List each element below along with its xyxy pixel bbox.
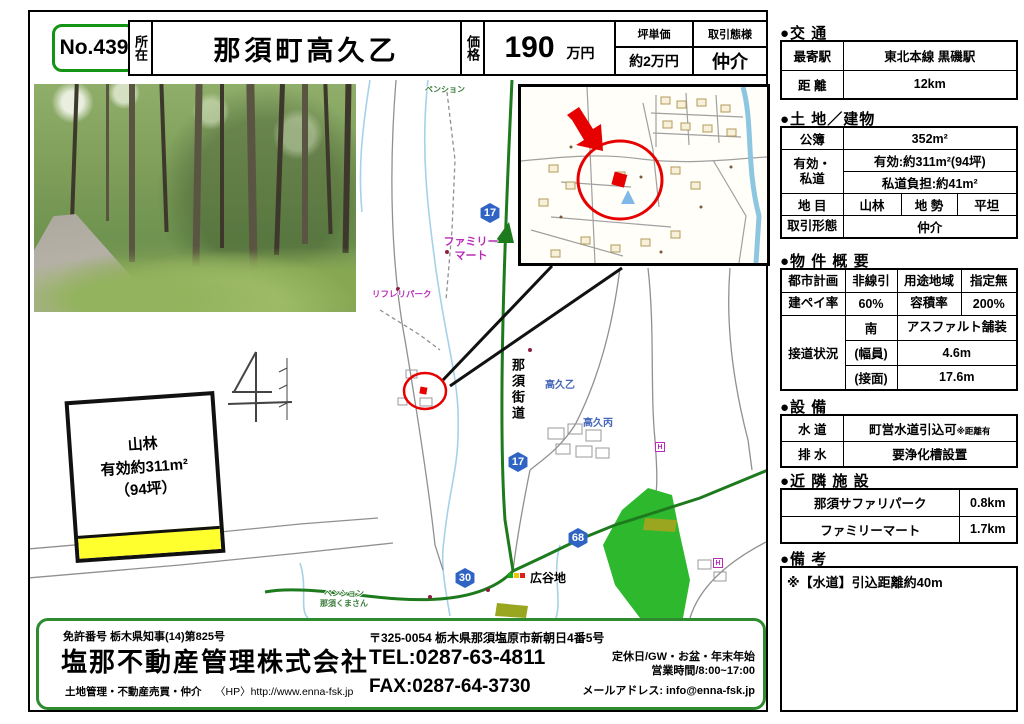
distance-value: 12km — [843, 70, 1017, 99]
effective-area-value: 有効:約311m²(94坪) — [843, 150, 1017, 172]
company-footer: 免許番号 栃木県知事(14)第825号 塩那不動産管理株式会社 土地管理・不動産… — [36, 618, 766, 710]
nearby-name: 那須サファリパーク — [781, 489, 959, 516]
details-sidebar: ●交 通 最寄駅 東北本線 黒磯駅 距 離 12km ●土 地／建物 公簿 35… — [778, 0, 1022, 724]
map-label-refre-park: リフレリパーク — [372, 288, 432, 300]
transaction-type-label: 取引態様 — [694, 22, 766, 48]
table-row: 那須サファリパーク 0.8km — [781, 489, 1017, 516]
nearby-distance: 0.8km — [959, 489, 1017, 516]
water-value-text: 町営水道引込可 — [869, 423, 957, 437]
water-label: 水 道 — [781, 415, 843, 441]
olive-patch-2 — [495, 603, 528, 618]
company-name: 塩那不動産管理株式会社 — [61, 642, 369, 679]
red-arrow-icon — [567, 107, 603, 151]
deal-form-value: 仲介 — [843, 216, 1017, 239]
map-dots — [396, 250, 532, 599]
water-value: 町営水道引込可※距離有 — [843, 415, 1017, 441]
price-unit: 万円 — [567, 43, 595, 63]
olive-patch — [643, 518, 677, 532]
plot-diagram: 山林 有効約311m² （94坪） — [65, 391, 226, 563]
map-label-takaku-otsu: 高久乙 — [545, 376, 575, 391]
company-website: 〈HP〉http://www.enna-fsk.jp — [215, 684, 353, 699]
zoning-value: 指定無 — [961, 269, 1017, 292]
tsubo-price-label: 坪単価 — [616, 22, 692, 48]
private-road-value: 私道負担:約41m² — [843, 172, 1017, 194]
inset-map-drawing — [521, 87, 767, 263]
water-value-note: ※距離有 — [957, 426, 991, 436]
registered-area-value: 352m² — [843, 127, 1017, 150]
deal-form-label: 取引形態 — [781, 216, 843, 239]
map-label-familymart: ファミリー マート — [432, 235, 510, 264]
transaction-type-value: 仲介 — [694, 48, 766, 74]
tsubo-price-value: 約2万円 — [616, 48, 692, 74]
sewage-label: 排 水 — [781, 441, 843, 467]
nearest-station-value: 東北本線 黒磯駅 — [843, 41, 1017, 70]
tree-trunk — [106, 84, 109, 221]
road-direction-value: 南 — [845, 315, 897, 340]
north-symbol — [228, 352, 292, 422]
facilities-table: 水 道 町営水道引込可※距離有 排 水 要浄化槽設置 — [780, 414, 1018, 468]
company-email: メールアドレス: info@enna-fsk.jp — [569, 682, 755, 698]
price-label: 価格 — [462, 22, 485, 74]
transport-table: 最寄駅 東北本線 黒磯駅 距 離 12km — [780, 40, 1018, 100]
map-label-takaku-hei: 高久丙 — [583, 414, 613, 429]
topography-value: 平坦 — [957, 194, 1017, 216]
table-row: 公簿 352m² — [781, 127, 1017, 150]
land-category-label: 地 目 — [781, 194, 843, 216]
nearby-name: ファミリーマート — [781, 516, 959, 543]
table-row: 都市計画 非線引 用途地域 指定無 — [781, 269, 1017, 292]
plot-diagram-text: 山林 有効約311m² （94坪） — [71, 429, 217, 506]
site-photo — [34, 84, 356, 312]
land-category-value: 山林 — [843, 194, 901, 216]
table-row: 水 道 町営水道引込可※距離有 — [781, 415, 1017, 441]
floor-ratio-label: 容積率 — [897, 292, 961, 315]
coverage-ratio-label: 建ペイ率 — [781, 292, 845, 315]
nearest-station-label: 最寄駅 — [781, 41, 843, 70]
frontage-label: (接面) — [845, 365, 897, 390]
traffic-light-icon — [508, 573, 525, 578]
table-row: 距 離 12km — [781, 70, 1017, 99]
map-label-nasukaido: 那須街道 — [508, 358, 527, 422]
price-value: 190 — [504, 31, 554, 65]
company-hours: 営業時間/8:00~17:00 — [569, 662, 755, 678]
leader-lines — [443, 266, 622, 386]
tree-trunk — [302, 84, 308, 244]
nearby-table: 那須サファリパーク 0.8km ファミリーマート 1.7km — [780, 488, 1018, 544]
tree-trunk — [159, 84, 168, 232]
city-planning-value: 非線引 — [845, 269, 897, 292]
hotel-icon: H — [655, 442, 665, 452]
nearby-distance: 1.7km — [959, 516, 1017, 543]
inset-map — [518, 84, 770, 266]
registered-area-label: 公簿 — [781, 127, 843, 150]
frontage-value: 17.6m — [897, 365, 1017, 390]
tree-trunk — [343, 84, 352, 253]
effective-label-line2: 私道 — [784, 172, 841, 186]
land-table: 公簿 352m² 有効・ 私道 有効:約311m²(94坪) 私道負担:約41m… — [780, 126, 1018, 239]
company-services: 土地管理・不動産売買・仲介 — [65, 684, 202, 699]
hotel-icon-2: H — [713, 558, 723, 568]
property-square — [419, 387, 427, 395]
price-box: 価格 190 万円 — [462, 20, 616, 76]
inset-blue-triangle — [621, 190, 635, 204]
map-label-pension-bottom: ペンション 那須くまさん — [320, 589, 368, 608]
inset-river — [743, 87, 759, 263]
table-row: 建ペイ率 60% 容積率 200% — [781, 292, 1017, 315]
location-label: 所在 — [130, 22, 153, 74]
company-tel: TEL:0287-63-4811 — [369, 646, 545, 670]
map-label-pension-top: ペンション — [425, 85, 465, 95]
distance-label: 距 離 — [781, 70, 843, 99]
road-pavement-value: アスファルト舗装 — [897, 315, 1017, 340]
overview-table: 都市計画 非線引 用途地域 指定無 建ペイ率 60% 容積率 200% 接道状況… — [780, 268, 1018, 391]
location-value: 那須町高久乙 — [153, 22, 460, 74]
map-label-familymart-line2: マート — [432, 249, 510, 263]
floor-ratio-value: 200% — [961, 292, 1017, 315]
photo-undergrowth — [34, 230, 356, 312]
table-row: 排 水 要浄化槽設置 — [781, 441, 1017, 467]
effective-label-line1: 有効・ — [784, 157, 841, 171]
road-width-label: (幅員) — [845, 340, 897, 365]
price-value-wrap: 190 万円 — [485, 22, 614, 74]
location-box: 所在 那須町高久乙 — [128, 20, 462, 76]
road-access-label: 接道状況 — [781, 315, 845, 390]
table-row: 最寄駅 東北本線 黒磯駅 — [781, 41, 1017, 70]
sewage-value: 要浄化槽設置 — [843, 441, 1017, 467]
map-label-hiroyachi: 広谷地 — [530, 569, 566, 586]
table-row: 有効・ 私道 有効:約311m²(94坪) — [781, 150, 1017, 172]
table-row: ファミリーマート 1.7km — [781, 516, 1017, 543]
map-label-pension-bottom-line2: 那須くまさん — [320, 599, 368, 609]
coverage-ratio-value: 60% — [845, 292, 897, 315]
remarks-box: ※【水道】引込距離約40m — [780, 566, 1018, 712]
property-flyer: 那須街道 ファミリー マート 広谷地 高久乙 高久丙 ペンション ペンション 那… — [0, 0, 1024, 724]
topography-label: 地 勢 — [901, 194, 957, 216]
listing-number-badge: No.439 — [52, 24, 136, 72]
forest-patch — [603, 488, 690, 618]
road-width-value: 4.6m — [897, 340, 1017, 365]
tsubo-price-box: 坪単価 約2万円 — [616, 20, 694, 76]
table-row: 地 目 山林 地 勢 平坦 — [781, 194, 1017, 216]
table-row: 取引形態 仲介 — [781, 216, 1017, 239]
map-label-pension-bottom-line1: ペンション — [320, 589, 368, 599]
transaction-type-box: 取引態様 仲介 — [694, 20, 768, 76]
plot-road-strip — [78, 526, 221, 559]
company-fax: FAX:0287-64-3730 — [369, 676, 531, 698]
map-label-familymart-line1: ファミリー — [432, 235, 510, 249]
tree-trunk — [220, 84, 224, 248]
city-planning-label: 都市計画 — [781, 269, 845, 292]
table-row: 接道状況 南 アスファルト舗装 — [781, 315, 1017, 340]
tree-trunk — [323, 84, 332, 234]
effective-private-label: 有効・ 私道 — [781, 150, 843, 194]
zoning-label: 用途地域 — [897, 269, 961, 292]
company-address: 〒325-0054 栃木県那須塩原市新朝日4番5号 — [369, 629, 604, 646]
